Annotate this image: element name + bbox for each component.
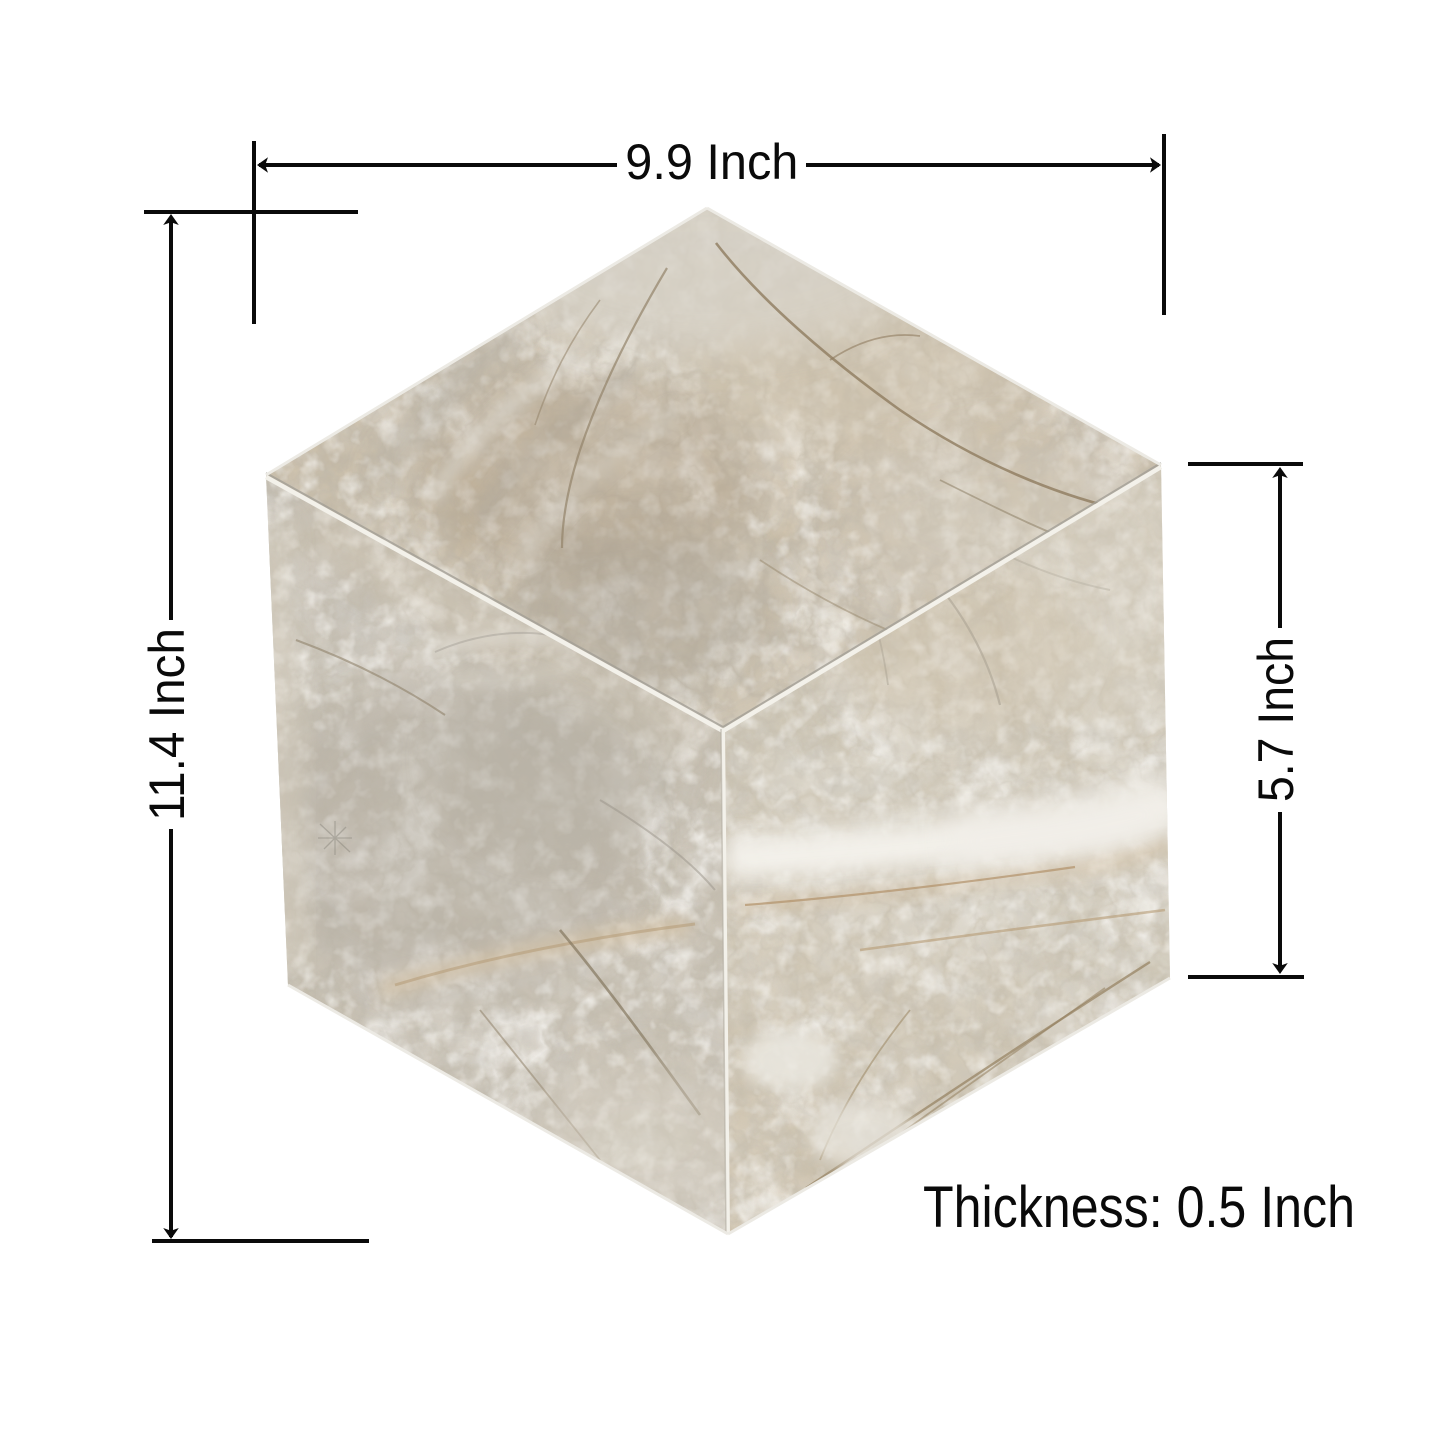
svg-text:Thickness: 0.5 Inch: Thickness: 0.5 Inch [923,1175,1355,1240]
svg-text:9.9 Inch: 9.9 Inch [625,134,798,190]
svg-text:11.4 Inch: 11.4 Inch [139,628,195,821]
svg-text:5.7 Inch: 5.7 Inch [1248,637,1304,802]
